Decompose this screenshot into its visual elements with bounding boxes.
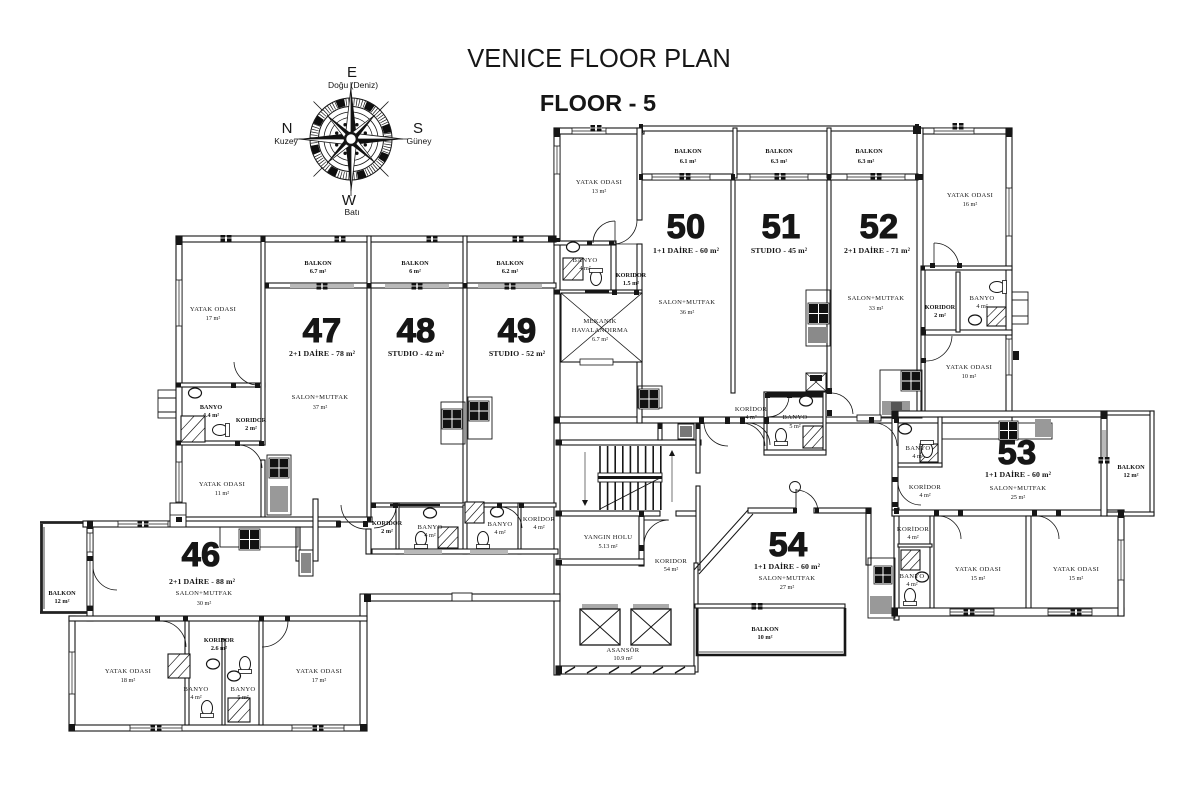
svg-text:SALON+MUTFAK: SALON+MUTFAK [292, 394, 349, 401]
svg-text:12 m²: 12 m² [1123, 472, 1138, 479]
svg-text:KORIDOR: KORIDOR [372, 520, 403, 527]
svg-text:STUDIO - 45 m²: STUDIO - 45 m² [751, 246, 808, 255]
svg-text:6.1 m²: 6.1 m² [680, 158, 697, 165]
svg-text:SALON+MUTFAK: SALON+MUTFAK [176, 590, 233, 597]
svg-text:6.7 m²: 6.7 m² [592, 336, 608, 343]
svg-text:13 m²: 13 m² [592, 188, 607, 195]
svg-text:KORIDOR: KORIDOR [655, 558, 687, 565]
svg-text:KORİDOR: KORİDOR [909, 484, 941, 491]
svg-text:S: S [413, 120, 423, 137]
svg-text:12 m²: 12 m² [54, 598, 69, 605]
svg-text:2 m²: 2 m² [381, 528, 393, 535]
svg-text:YATAK ODASI: YATAK ODASI [946, 364, 992, 371]
svg-text:50: 50 [667, 208, 706, 246]
svg-text:1.5 m²: 1.5 m² [623, 280, 639, 287]
svg-text:4 m²: 4 m² [907, 534, 918, 541]
svg-text:4 m²: 4 m² [494, 529, 505, 536]
svg-text:10 m²: 10 m² [757, 634, 772, 641]
svg-text:YANGIN HOLU: YANGIN HOLU [584, 534, 633, 541]
svg-text:BALKON: BALKON [496, 260, 524, 267]
svg-text:STUDIO - 52 m²: STUDIO - 52 m² [489, 349, 546, 358]
svg-text:BANYO: BANYO [900, 573, 925, 580]
svg-text:11 m²: 11 m² [215, 490, 229, 497]
svg-text:BALKON: BALKON [304, 260, 332, 267]
svg-text:6.3 m²: 6.3 m² [858, 158, 875, 165]
svg-text:YATAK ODASI: YATAK ODASI [296, 668, 342, 675]
svg-text:SALON+MUTFAK: SALON+MUTFAK [659, 299, 716, 306]
svg-text:48: 48 [397, 312, 436, 350]
svg-text:37 m²: 37 m² [313, 404, 328, 411]
svg-text:15 m²: 15 m² [1069, 575, 1084, 582]
svg-text:10 m²: 10 m² [962, 373, 977, 380]
svg-text:16 m²: 16 m² [963, 201, 978, 208]
svg-text:SALON+MUTFAK: SALON+MUTFAK [990, 485, 1047, 492]
svg-text:36 m²: 36 m² [680, 309, 695, 316]
svg-text:2 m²: 2 m² [934, 312, 946, 319]
svg-text:ASANSÖR: ASANSÖR [607, 647, 640, 654]
svg-text:YATAK ODASI: YATAK ODASI [947, 192, 993, 199]
svg-text:17 m²: 17 m² [312, 677, 327, 684]
svg-text:4.4 m²: 4.4 m² [203, 412, 219, 419]
svg-text:2+1 DAİRE - 78 m²: 2+1 DAİRE - 78 m² [289, 348, 356, 358]
svg-text:54: 54 [769, 526, 808, 564]
svg-text:KORİDOR: KORİDOR [897, 526, 929, 533]
svg-text:4 m²: 4 m² [533, 524, 544, 531]
svg-text:BANYO: BANYO [418, 524, 443, 531]
svg-text:52: 52 [860, 208, 899, 246]
svg-text:BANYO: BANYO [573, 257, 598, 264]
svg-text:17 m²: 17 m² [206, 315, 221, 322]
svg-text:BANYO: BANYO [200, 404, 223, 411]
svg-text:SALON+MUTFAK: SALON+MUTFAK [848, 295, 905, 302]
svg-text:BANYO: BANYO [906, 445, 931, 452]
svg-text:BALKON: BALKON [401, 260, 429, 267]
svg-text:STUDIO - 42 m²: STUDIO - 42 m² [388, 349, 445, 358]
svg-text:53: 53 [998, 434, 1037, 472]
svg-text:KORİDOR: KORİDOR [735, 406, 767, 413]
svg-text:BALKON: BALKON [765, 148, 793, 155]
svg-text:46: 46 [182, 536, 221, 574]
svg-text:Kuzey: Kuzey [274, 136, 298, 146]
svg-text:N: N [282, 120, 293, 137]
svg-text:YATAK ODASI: YATAK ODASI [955, 566, 1001, 573]
svg-text:HAVALANDIRMA: HAVALANDIRMA [572, 327, 628, 334]
svg-text:BALKON: BALKON [48, 590, 76, 597]
svg-text:51: 51 [762, 208, 801, 246]
svg-text:BANYO: BANYO [783, 414, 808, 421]
svg-text:YATAK ODASI: YATAK ODASI [199, 481, 245, 488]
svg-text:5.13 m²: 5.13 m² [598, 543, 617, 550]
svg-text:5 m²: 5 m² [237, 694, 248, 701]
svg-text:15 m²: 15 m² [971, 575, 986, 582]
svg-text:1+1 DAİRE - 60 m²: 1+1 DAİRE - 60 m² [985, 469, 1052, 479]
svg-text:6.7 m²: 6.7 m² [310, 268, 327, 275]
svg-text:2+1 DAİRE - 71 m²: 2+1 DAİRE - 71 m² [844, 245, 911, 255]
svg-text:BANYO: BANYO [488, 521, 513, 528]
svg-text:KORIDOR: KORIDOR [616, 272, 647, 279]
svg-text:30 m²: 30 m² [197, 600, 212, 607]
svg-text:YATAK ODASI: YATAK ODASI [105, 668, 151, 675]
svg-text:SALON+MUTFAK: SALON+MUTFAK [759, 575, 816, 582]
svg-text:33 m²: 33 m² [869, 305, 884, 312]
svg-text:BALKON: BALKON [674, 148, 702, 155]
svg-text:KORİDOR: KORİDOR [523, 516, 555, 523]
svg-text:FLOOR - 5: FLOOR - 5 [540, 90, 656, 116]
svg-text:18 m²: 18 m² [121, 677, 136, 684]
svg-text:5 m²: 5 m² [789, 423, 800, 430]
svg-text:YATAK ODASI: YATAK ODASI [190, 306, 236, 313]
svg-text:4 m²: 4 m² [745, 414, 756, 421]
svg-text:KORIDOR: KORIDOR [204, 637, 235, 644]
svg-text:Doğu (Deniz): Doğu (Deniz) [328, 80, 378, 90]
svg-text:47: 47 [303, 312, 342, 350]
svg-text:4 m²: 4 m² [190, 694, 201, 701]
svg-text:MEKANIK: MEKANIK [583, 318, 616, 325]
svg-text:BALKON: BALKON [855, 148, 883, 155]
svg-text:YATAK ODASI: YATAK ODASI [1053, 566, 1099, 573]
svg-text:4 m²: 4 m² [579, 265, 590, 272]
svg-text:2 m²: 2 m² [245, 425, 257, 432]
svg-text:27 m²: 27 m² [780, 584, 795, 591]
svg-text:BANYO: BANYO [970, 295, 995, 302]
svg-text:2+1 DAİRE - 88 m²: 2+1 DAİRE - 88 m² [169, 576, 236, 586]
svg-text:6 m²: 6 m² [409, 268, 421, 275]
svg-text:1+1 DAİRE - 60 m²: 1+1 DAİRE - 60 m² [754, 561, 821, 571]
svg-text:6.3 m²: 6.3 m² [771, 158, 788, 165]
svg-text:BALKON: BALKON [1117, 464, 1145, 471]
svg-text:KORIDOR: KORIDOR [925, 304, 956, 311]
svg-text:4 m²: 4 m² [912, 453, 923, 460]
svg-text:2.6 m²: 2.6 m² [211, 645, 227, 652]
svg-text:1+1 DAİRE - 60 m²: 1+1 DAİRE - 60 m² [653, 245, 720, 255]
svg-text:BANYO: BANYO [231, 686, 256, 693]
svg-text:4 m²: 4 m² [424, 532, 435, 539]
svg-text:10.9 m²: 10.9 m² [613, 655, 632, 662]
svg-text:VENICE FLOOR PLAN: VENICE FLOOR PLAN [467, 45, 731, 73]
svg-text:YATAK ODASI: YATAK ODASI [576, 179, 622, 186]
svg-text:BALKON: BALKON [751, 626, 779, 633]
svg-text:4 m²: 4 m² [906, 581, 917, 588]
svg-text:4 m²: 4 m² [976, 303, 987, 310]
svg-text:Güney: Güney [406, 136, 432, 146]
svg-text:25 m²: 25 m² [1011, 494, 1026, 501]
svg-text:6.2 m²: 6.2 m² [502, 268, 519, 275]
svg-text:54 m²: 54 m² [664, 566, 679, 573]
svg-text:E: E [347, 64, 357, 81]
svg-text:49: 49 [498, 312, 537, 350]
svg-text:4 m²: 4 m² [919, 492, 930, 499]
svg-text:BANYO: BANYO [184, 686, 209, 693]
svg-text:Batı: Batı [344, 207, 359, 217]
svg-text:KORIDOR: KORIDOR [236, 417, 267, 424]
